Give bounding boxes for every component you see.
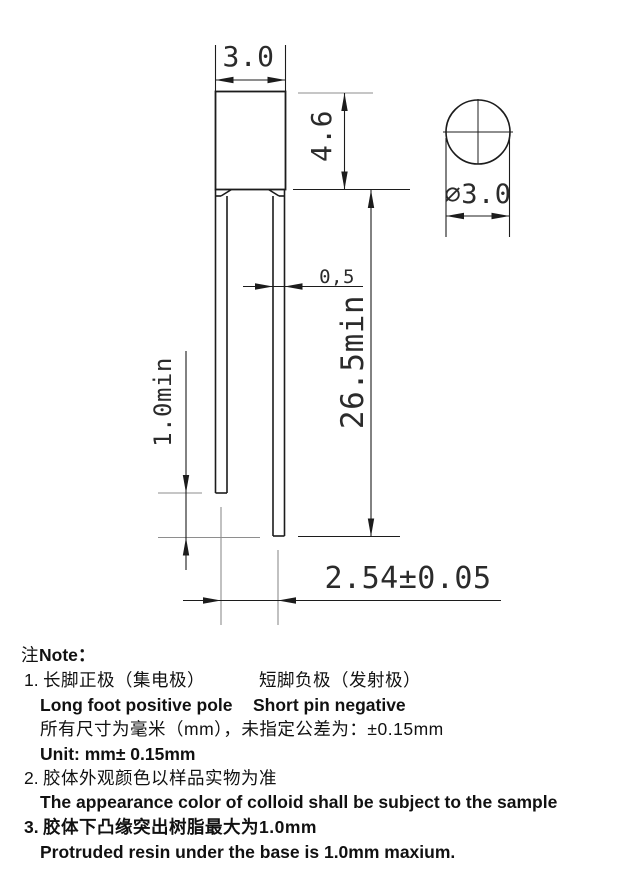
note3-en: Protruded resin under the base is 1.0mm … — [40, 842, 455, 863]
note2-cn: 胶体外观颜色以样品实物为准 — [43, 768, 277, 789]
note1-cn-dimensions: 所有尺寸为毫米（mm），未指定公差为：±0.15mm — [40, 719, 444, 740]
note1-unit: Unit: mm± 0.15mm — [40, 744, 195, 765]
note2-number: 2. — [24, 768, 39, 789]
datasheet-page: 3.0 4.6 0,5 26.5min 1.0min 2.54±0.05 ⌀3.… — [0, 0, 629, 887]
note1-cn-positive: 长脚正极（集电极） — [43, 670, 205, 691]
note2-en: The appearance color of colloid shall be… — [40, 792, 557, 813]
note3-cn: 胶体下凸缘突出树脂最大为1.0mm — [43, 817, 317, 838]
note1-number: 1. — [24, 670, 39, 691]
note-header-en: Note： — [39, 645, 95, 666]
note3-number: 3. — [24, 817, 39, 838]
note1-en-positive: Long foot positive pole — [40, 695, 232, 716]
notes-block: 注 Note： 1. 长脚正极（集电极） 短脚负极（发射极） Long foot… — [0, 0, 629, 887]
note-header-cn: 注 — [21, 645, 39, 666]
note1-en-negative: Short pin negative — [253, 695, 406, 716]
note1-cn-negative: 短脚负极（发射极） — [259, 670, 421, 691]
